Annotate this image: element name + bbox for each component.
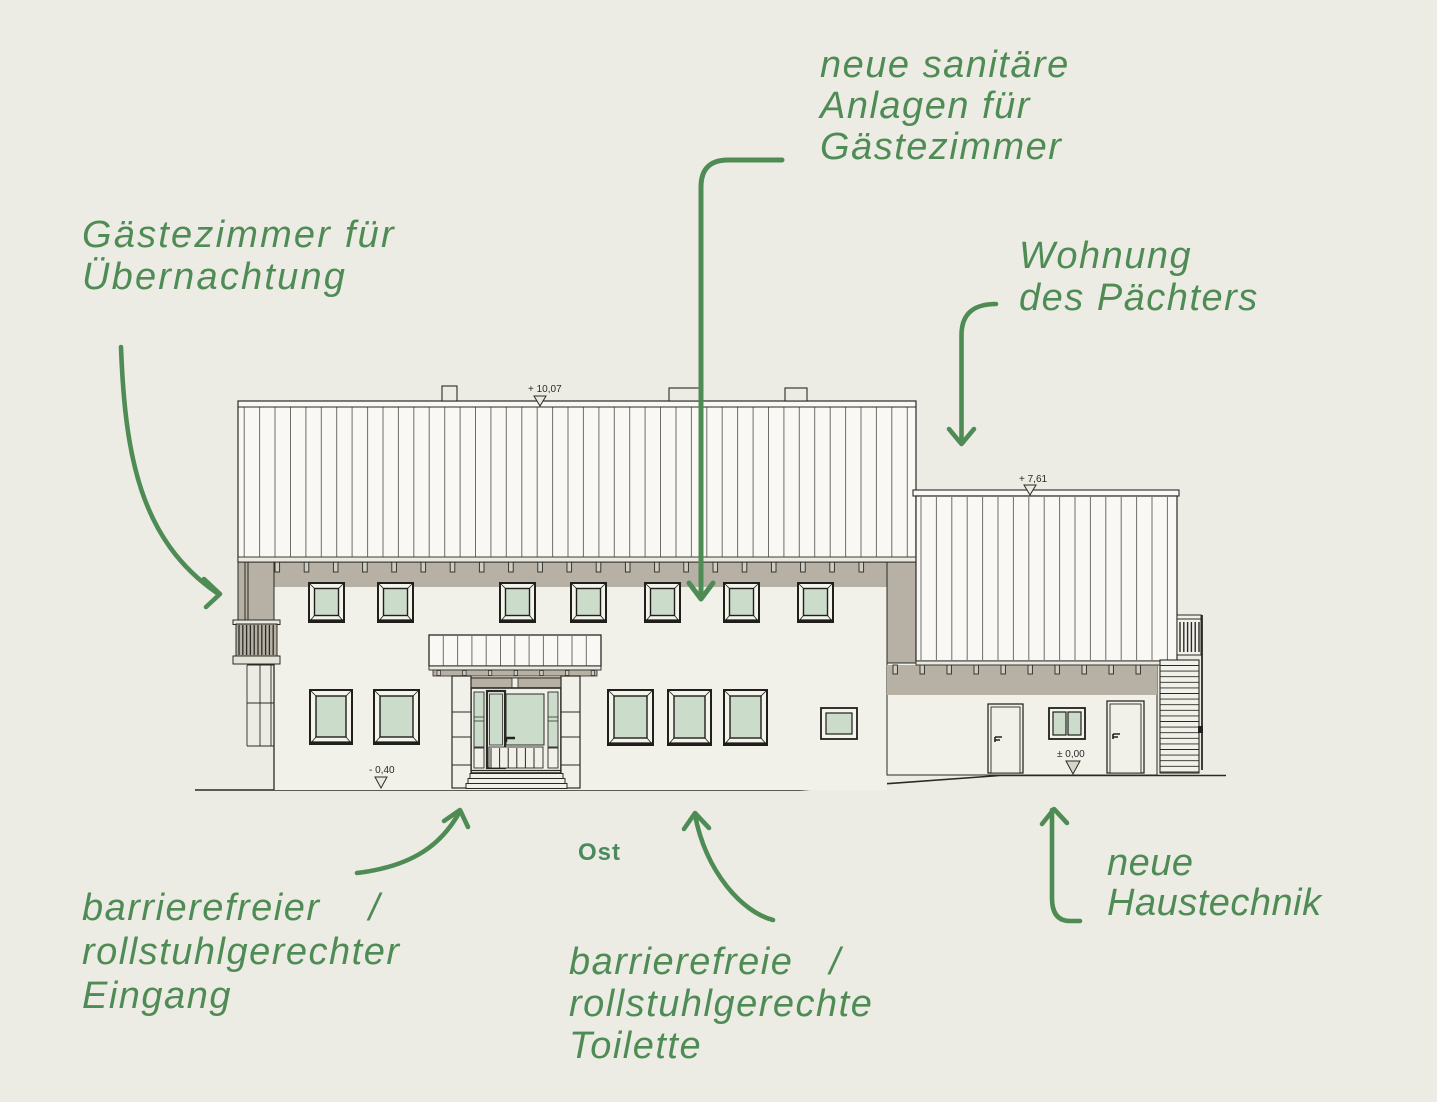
svg-text:± 0,00: ± 0,00 <box>1057 749 1085 760</box>
svg-text:+ 10,07: + 10,07 <box>528 384 562 395</box>
svg-text:- 0,40: - 0,40 <box>369 765 395 776</box>
svg-text:+ 7,61: + 7,61 <box>1019 474 1048 485</box>
